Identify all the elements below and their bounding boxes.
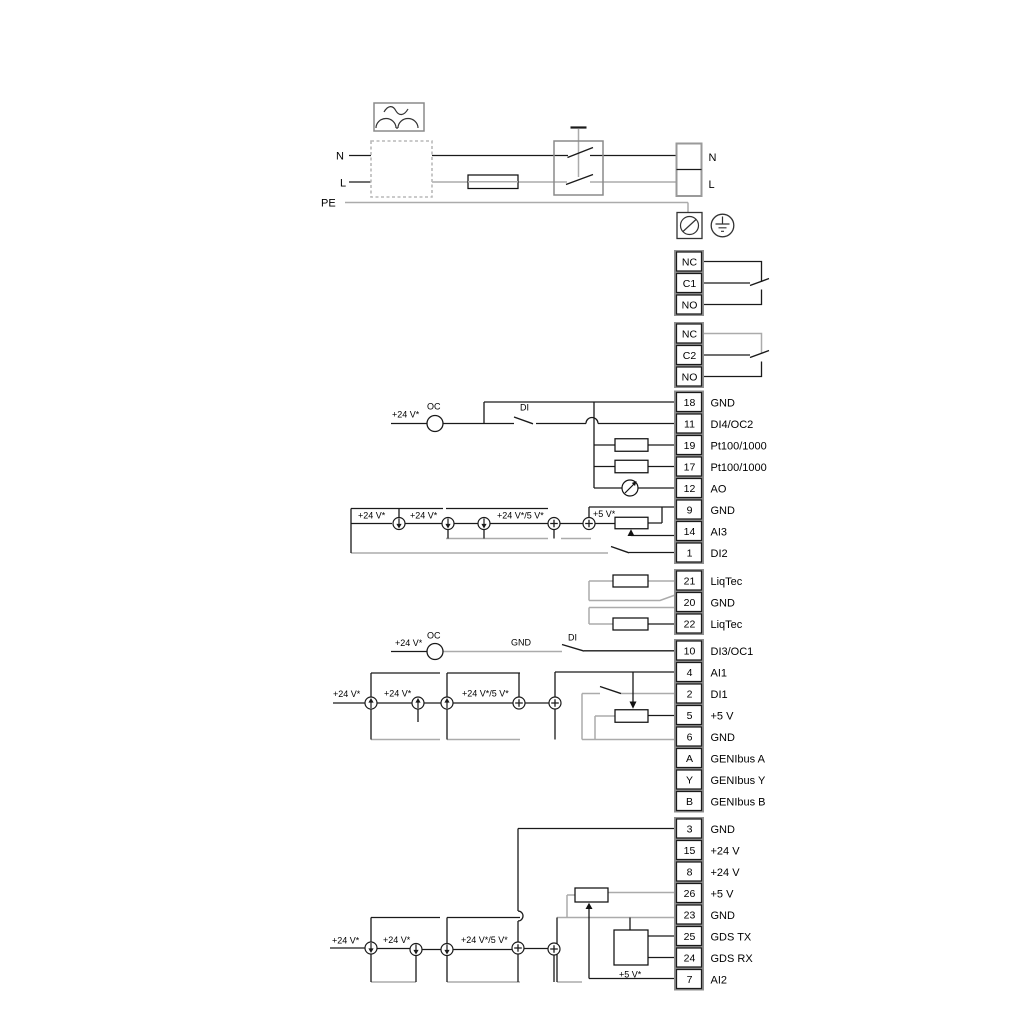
terminal-label: AI3 xyxy=(711,526,728,538)
gds-module-box xyxy=(614,930,648,965)
terminal-label: Pt100/1000 xyxy=(711,462,767,474)
relay-terminal-label: NO xyxy=(682,300,698,312)
source-circle-plus xyxy=(512,942,524,954)
terminal-label: GND xyxy=(711,597,736,609)
open-collector-circle-di4 xyxy=(427,416,443,432)
terminal-label: GENIbus Y xyxy=(711,775,766,787)
annotation-label: +5 V* xyxy=(619,970,642,980)
annotation-label: +24 V* xyxy=(395,638,423,648)
terminal-number: A xyxy=(686,753,693,765)
terminal-label: AI1 xyxy=(711,667,728,679)
terminal-label: AO xyxy=(711,483,727,495)
resistor-pt100-19 xyxy=(615,439,648,452)
terminal-number: 15 xyxy=(684,845,696,857)
wiring-diagram-canvas: 18GND11DI4/OC219Pt100/100017Pt100/100012… xyxy=(0,0,1024,1024)
source-circle-plus xyxy=(513,697,525,709)
ac-waveform-box xyxy=(374,103,424,131)
annotation-label: +24 V*/5 V* xyxy=(462,689,509,699)
terminal-number: 8 xyxy=(687,867,693,879)
terminal-number: 7 xyxy=(687,974,693,986)
terminal-label: LiqTec xyxy=(711,619,743,631)
terminal-label: GND xyxy=(711,505,736,517)
terminal-number: 17 xyxy=(684,462,696,474)
terminal-label: GENIbus A xyxy=(711,753,766,765)
terminal-number: 9 xyxy=(687,505,693,517)
terminal-number: 6 xyxy=(687,732,693,744)
source-circle-arrow-down xyxy=(365,942,377,954)
terminal-label: AI2 xyxy=(711,974,728,986)
label-pe-left: PE xyxy=(321,198,336,210)
potentiometer-ai3 xyxy=(615,517,648,529)
terminal-number: 11 xyxy=(684,419,695,431)
annotation-label: +24 V* xyxy=(392,410,420,420)
terminal-label: GND xyxy=(711,397,736,409)
terminal-label: DI2 xyxy=(711,548,728,560)
annotation-label: +24 V* xyxy=(333,689,361,699)
annotation-label: DI xyxy=(520,403,529,413)
source-circle-plus xyxy=(583,518,595,530)
annotation-label: OC xyxy=(427,402,441,412)
relay-terminal-label: C1 xyxy=(683,278,697,290)
terminal-number: 18 xyxy=(684,397,696,409)
terminal-number: 2 xyxy=(687,689,693,701)
terminal-label: +24 V xyxy=(711,867,741,879)
label-n-right: N xyxy=(709,152,717,164)
terminal-number: 3 xyxy=(687,824,693,836)
terminal-label: GND xyxy=(711,910,736,922)
source-circle-plus xyxy=(548,518,560,530)
source-circle-arrow-up xyxy=(441,697,453,709)
annotation-label: DI xyxy=(568,633,577,643)
terminal-number: 23 xyxy=(684,910,696,922)
open-collector-circle-di3 xyxy=(427,644,443,660)
source-circle-arrow-down xyxy=(410,944,422,956)
source-circle-arrow-down xyxy=(393,518,405,530)
liqtec-resistor-22 xyxy=(613,618,648,630)
label-n-left: N xyxy=(336,151,344,163)
annotation-label: +24 V* xyxy=(332,936,360,946)
relay-terminal-label: NC xyxy=(682,257,698,269)
relay-terminal-label: NC xyxy=(682,329,698,341)
terminal-number: 24 xyxy=(684,953,696,965)
terminal-number: 20 xyxy=(684,597,696,609)
annotation-label: +24 V*/5 V* xyxy=(497,511,544,521)
terminal-label: LiqTec xyxy=(711,576,743,588)
label-l-left: L xyxy=(340,178,346,190)
annotation-label: OC xyxy=(427,631,441,641)
annotation-label: +24 V* xyxy=(384,689,412,699)
terminal-strips: 18GND11DI4/OC219Pt100/100017Pt100/100012… xyxy=(674,250,767,991)
potentiometer-ai2-wiper-arrow xyxy=(586,903,593,909)
annotation-label: +24 V* xyxy=(358,511,386,521)
annotation-label: GND xyxy=(511,638,532,648)
terminal-number: 4 xyxy=(687,667,693,679)
terminal-number: 12 xyxy=(684,483,696,495)
terminal-number: B xyxy=(686,796,693,808)
source-circle-plus xyxy=(548,943,560,955)
annotation-label: +24 V* xyxy=(410,511,438,521)
terminal-label: +5 V xyxy=(711,888,735,900)
resistor-pt100-17 xyxy=(615,460,648,473)
terminal-label: DI4/OC2 xyxy=(711,419,754,431)
source-circle-arrow-down xyxy=(441,944,453,956)
source-circle-arrow-down xyxy=(442,518,454,530)
wiring-diagram: 18GND11DI4/OC219Pt100/100017Pt100/100012… xyxy=(0,0,1024,1024)
terminal-label: GND xyxy=(711,824,736,836)
potentiometer-ai1 xyxy=(615,710,648,723)
terminal-number: Y xyxy=(686,775,693,787)
source-circle-arrow-up xyxy=(365,697,377,709)
terminal-number: 10 xyxy=(684,646,696,658)
annotation-label: +24 V*/5 V* xyxy=(461,935,508,945)
terminal-number: 14 xyxy=(684,526,696,538)
terminal-label: Pt100/1000 xyxy=(711,440,767,452)
potentiometer-ai2 xyxy=(575,888,608,902)
terminal-number: 26 xyxy=(684,888,696,900)
source-circle-plus xyxy=(549,697,561,709)
relay-terminal-label: NO xyxy=(682,372,698,384)
terminal-label: GND xyxy=(711,732,736,744)
source-circle-arrow-up xyxy=(412,697,424,709)
terminal-label: DI3/OC1 xyxy=(711,646,754,658)
annotation-label: +24 V* xyxy=(383,935,411,945)
relay-terminal-label: C2 xyxy=(683,350,697,362)
terminal-label: GDS RX xyxy=(711,953,754,965)
source-circle-arrow-down xyxy=(478,518,490,530)
terminal-label: GENIbus B xyxy=(711,796,766,808)
potentiometer-ai1-wiper-arrow xyxy=(630,702,637,709)
terminal-number: 21 xyxy=(684,576,696,588)
current-source-symbols xyxy=(365,518,595,956)
terminal-label: +5 V xyxy=(711,710,735,722)
filter-dashed-box xyxy=(371,141,432,197)
terminal-label: GDS TX xyxy=(711,931,752,943)
terminal-number: 22 xyxy=(684,619,696,631)
terminal-number: 5 xyxy=(687,710,693,722)
terminal-label: +24 V xyxy=(711,845,741,857)
terminal-number: 1 xyxy=(687,548,693,560)
terminal-number: 19 xyxy=(684,440,696,452)
annotation-label: +5 V* xyxy=(593,509,616,519)
potentiometer-ai3-wiper-arrow xyxy=(628,529,635,536)
liqtec-resistor-21 xyxy=(613,575,648,587)
terminal-number: 25 xyxy=(684,931,696,943)
terminal-label: DI1 xyxy=(711,689,728,701)
label-l-right: L xyxy=(709,179,715,191)
